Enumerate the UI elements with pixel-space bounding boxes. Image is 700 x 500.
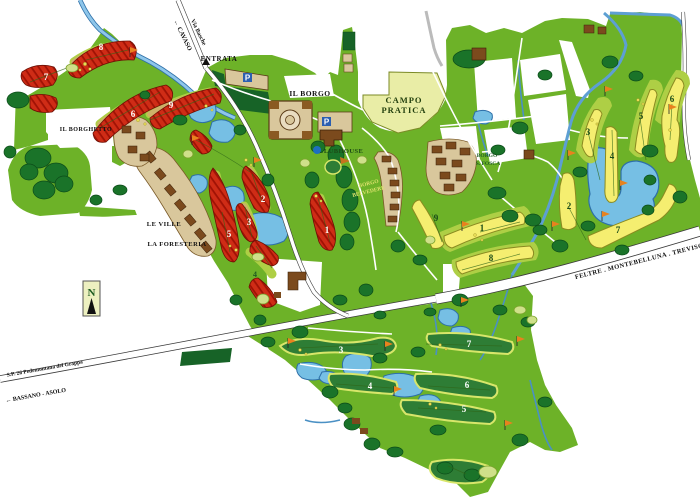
svg-text:4: 4 [368, 381, 373, 391]
svg-text:6: 6 [670, 94, 675, 104]
svg-text:8: 8 [489, 253, 494, 263]
svg-text:P: P [245, 74, 251, 83]
svg-text:IL BORGO: IL BORGO [289, 89, 330, 98]
svg-text:5: 5 [227, 229, 232, 239]
svg-text:CLUBHOUSE: CLUBHOUSE [319, 148, 363, 155]
svg-text:5: 5 [462, 404, 467, 414]
svg-text:S. FOSCA: S. FOSCA [476, 161, 500, 167]
svg-text:BORGO: BORGO [477, 153, 498, 159]
svg-text:2: 2 [261, 194, 266, 204]
svg-text:7: 7 [616, 225, 621, 235]
svg-text:9: 9 [169, 100, 174, 110]
svg-text:LA FORESTERIA: LA FORESTERIA [147, 241, 206, 248]
svg-text:PRATICA: PRATICA [381, 105, 426, 115]
svg-text:6: 6 [131, 109, 136, 119]
svg-text:3: 3 [247, 217, 252, 227]
svg-text:4: 4 [253, 270, 257, 279]
svg-text:7: 7 [44, 72, 49, 82]
svg-text:1: 1 [480, 223, 485, 233]
svg-text:3: 3 [339, 345, 344, 355]
svg-text:IL BORGHETTO: IL BORGHETTO [60, 127, 112, 133]
svg-text:P: P [324, 118, 330, 127]
svg-text:8: 8 [99, 42, 104, 52]
svg-text:N: N [88, 287, 96, 299]
svg-text:1: 1 [325, 225, 330, 235]
svg-text:2: 2 [567, 201, 572, 211]
svg-text:3: 3 [586, 127, 591, 137]
svg-text:LE VILLE: LE VILLE [147, 221, 181, 228]
svg-text:4: 4 [610, 151, 615, 161]
svg-text:CAMPO: CAMPO [385, 95, 422, 105]
svg-text:7: 7 [467, 339, 472, 349]
svg-text:6: 6 [465, 380, 470, 390]
svg-text:9: 9 [434, 213, 439, 223]
svg-text:5: 5 [639, 111, 644, 121]
